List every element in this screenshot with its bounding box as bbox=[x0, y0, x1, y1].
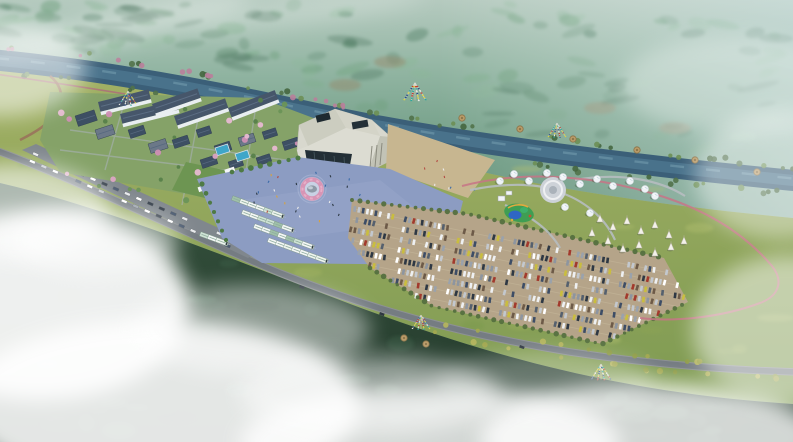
glamping-shed bbox=[506, 191, 512, 195]
flower-circle bbox=[298, 175, 326, 203]
aerial-rendering: Aerial architectural rendering of a rive… bbox=[0, 0, 793, 442]
circular-plaza bbox=[540, 177, 566, 203]
glamping-shed bbox=[498, 196, 505, 201]
aerial-rendering-stage: Aerial architectural rendering of a rive… bbox=[0, 0, 793, 442]
